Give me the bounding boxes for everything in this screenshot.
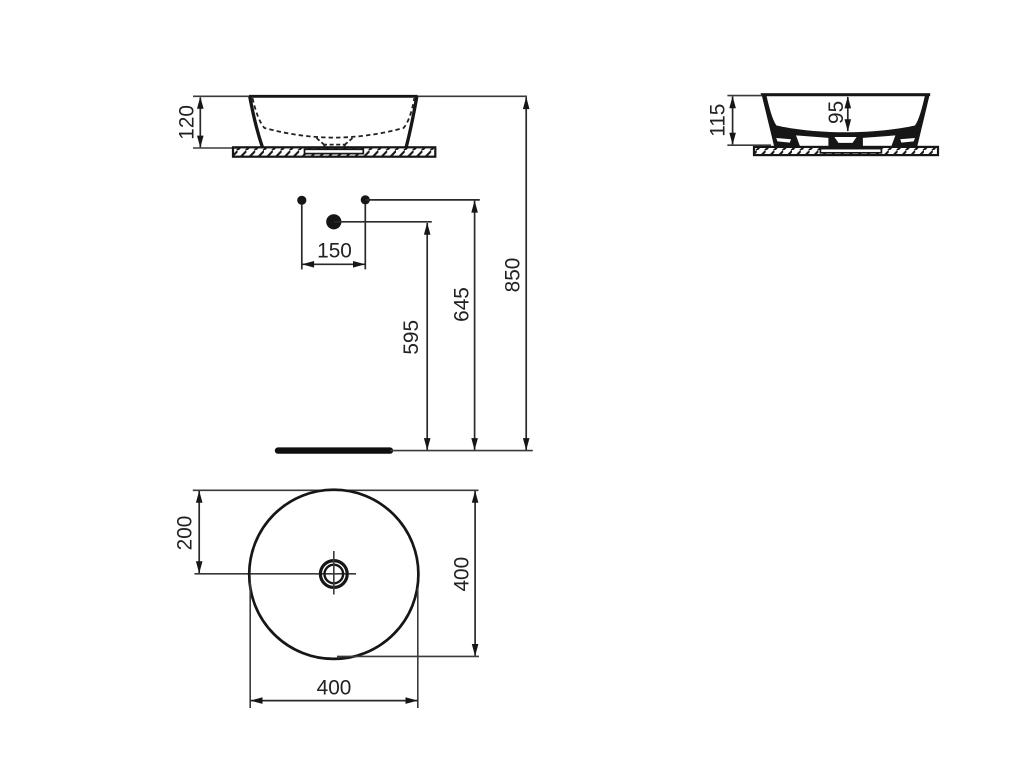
svg-text:595: 595 (400, 320, 423, 355)
svg-text:150: 150 (317, 240, 352, 263)
svg-text:95: 95 (825, 101, 848, 124)
svg-text:400: 400 (450, 557, 473, 592)
svg-text:200: 200 (173, 516, 196, 551)
svg-text:115: 115 (707, 104, 730, 137)
svg-text:120: 120 (176, 105, 199, 140)
svg-text:850: 850 (501, 258, 524, 293)
svg-text:400: 400 (317, 677, 352, 700)
svg-text:645: 645 (450, 287, 473, 322)
